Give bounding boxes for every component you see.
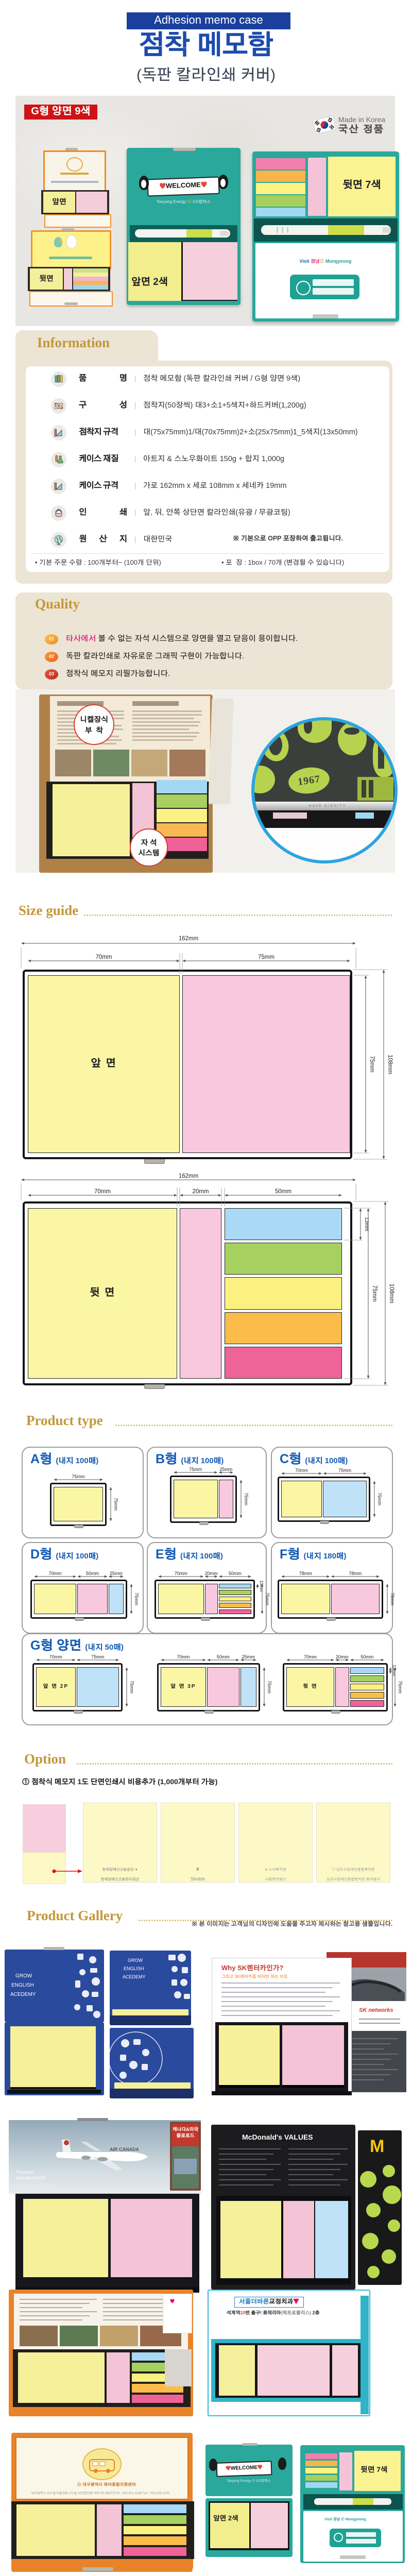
svg-text:75mm: 75mm: [398, 1681, 403, 1693]
svg-text:70mm: 70mm: [96, 954, 112, 960]
svg-text:Timeless: Timeless: [16, 2170, 33, 2175]
svg-text:Canada &/USA: Canada &/USA: [16, 2175, 46, 2180]
svg-text:75mm: 75mm: [369, 1056, 375, 1073]
svg-text:20mm: 20mm: [193, 1189, 209, 1195]
svg-text:75mm: 75mm: [371, 1285, 377, 1302]
svg-text:75mm: 75mm: [258, 954, 274, 960]
svg-text:13mm: 13mm: [364, 1217, 369, 1231]
svg-text:50mm: 50mm: [275, 1189, 291, 1195]
svg-text:70mm: 70mm: [94, 1189, 111, 1195]
svg-text:162mm: 162mm: [179, 936, 198, 942]
svg-text:108mm: 108mm: [388, 1283, 394, 1303]
svg-text:162mm: 162mm: [179, 1173, 198, 1179]
svg-text:AIR CANADA VACATIONS: AIR CANADA VACATIONS: [16, 2184, 53, 2187]
svg-text:108mm: 108mm: [387, 1055, 393, 1074]
svg-text:AIR CANADA: AIR CANADA: [110, 2147, 139, 2152]
